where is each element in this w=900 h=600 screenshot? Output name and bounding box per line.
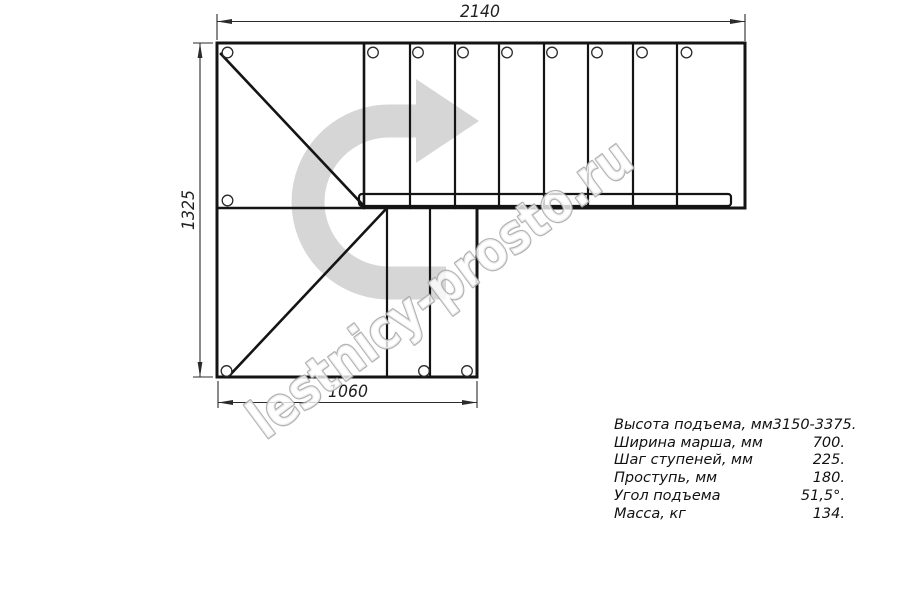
spec-value: 700. xyxy=(813,435,845,453)
spec-row: Шаг ступеней, мм 225. xyxy=(614,452,845,470)
dim-arrowhead-bottom xyxy=(198,362,203,377)
spec-label: Шаг ступеней, мм xyxy=(614,452,753,470)
dim-arrowhead-right xyxy=(730,19,745,24)
spec-label: Масса, кг xyxy=(614,506,686,524)
dimension-top: 2140 xyxy=(217,2,745,41)
spec-row: Высота подъема, мм 3150-3375. xyxy=(614,417,845,435)
spec-label: Высота подъема, мм xyxy=(614,417,773,435)
spec-value: 180. xyxy=(813,470,845,488)
spec-label: Ширина марша, мм xyxy=(614,435,763,453)
spec-value: 134. xyxy=(813,506,845,524)
spec-row: Ширина марша, мм 700. xyxy=(614,435,845,453)
dim-arrowhead-top xyxy=(198,43,203,58)
spec-row: Проступь, мм 180. xyxy=(614,470,845,488)
mount-holes xyxy=(221,47,692,376)
spec-row: Угол подъема 51,5°. xyxy=(614,488,845,506)
dimension-top-value: 2140 xyxy=(460,2,500,22)
spec-value: 225. xyxy=(813,452,845,470)
spec-row: Масса, кг 134. xyxy=(614,506,845,524)
spec-value: 51,5°. xyxy=(801,488,845,506)
stair-plan-screenshot: 2140 1325 1060 lestnicy-prosto.ru Высота… xyxy=(0,0,900,600)
dimension-left: 1325 xyxy=(179,43,213,377)
dim-arrowhead-right xyxy=(462,400,477,405)
spec-value: 3150-3375. xyxy=(773,417,857,435)
u-turn-arrow-head xyxy=(416,79,479,163)
dimension-left-value: 1325 xyxy=(179,190,199,230)
spec-label: Проступь, мм xyxy=(614,470,717,488)
dim-arrowhead-left xyxy=(218,400,233,405)
dim-arrowhead-left xyxy=(217,19,232,24)
spec-label: Угол подъема xyxy=(614,488,721,506)
spec-table: Высота подъема, мм 3150-3375. Ширина мар… xyxy=(614,417,845,523)
